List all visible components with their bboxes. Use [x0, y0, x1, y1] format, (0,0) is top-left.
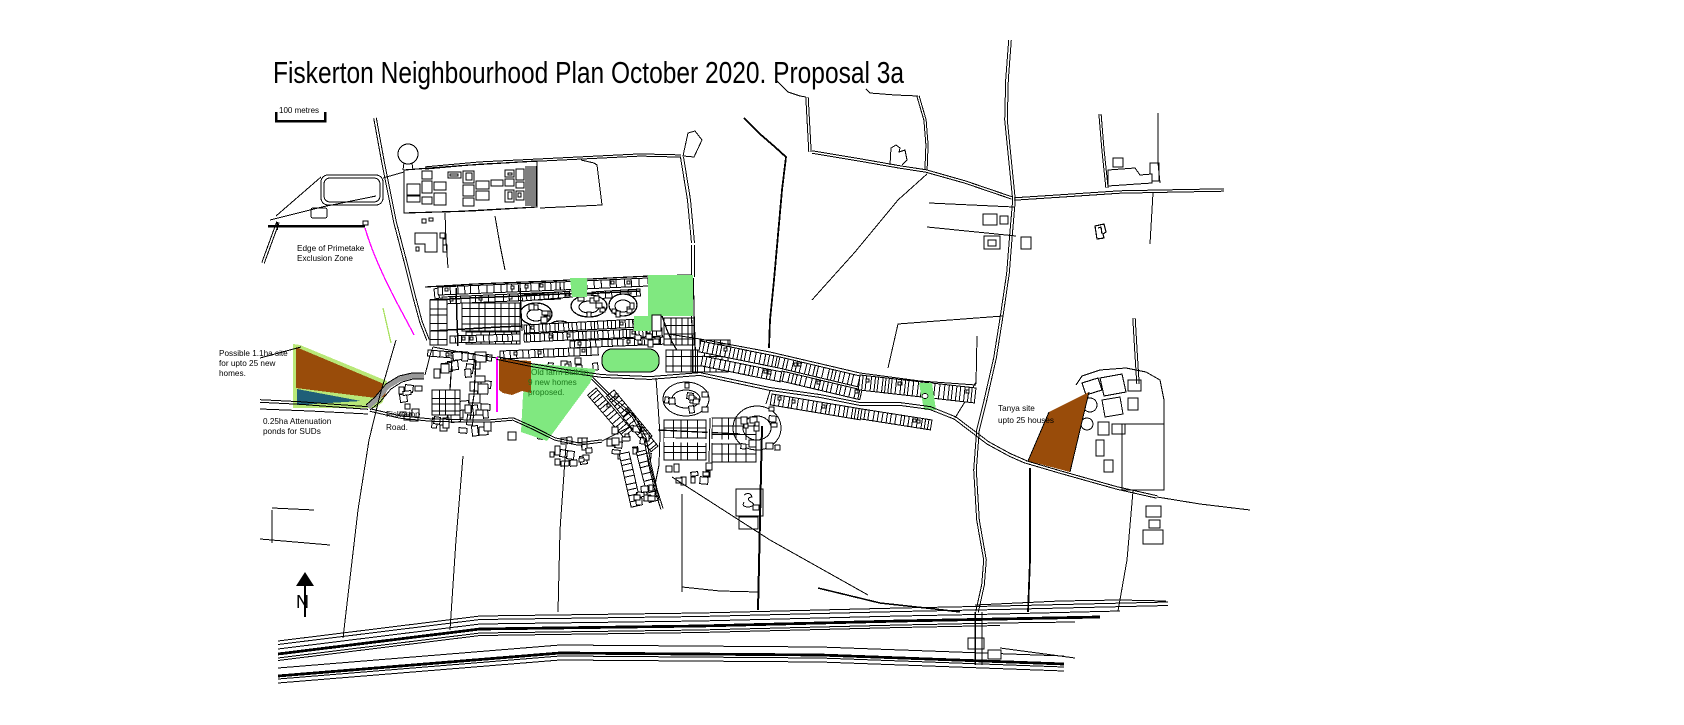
svg-text:Possible 1.1ha site: Possible 1.1ha site [219, 349, 288, 358]
svg-text:Old farm buildin: Old farm buildin [531, 368, 589, 377]
svg-text:Edge of Primetake: Edge of Primetake [297, 244, 365, 253]
svg-text:Fiskerton Neighbourhood Plan O: Fiskerton Neighbourhood Plan October 202… [273, 55, 905, 90]
svg-text:0.25ha Attenuation: 0.25ha Attenuation [263, 417, 332, 426]
svg-text:Exclusion Zone: Exclusion Zone [297, 254, 353, 263]
svg-text:100 metres: 100 metres [279, 106, 319, 115]
svg-text:Tanya site: Tanya site [998, 404, 1035, 413]
svg-text:ponds for SUDs: ponds for SUDs [263, 427, 321, 436]
svg-text:for upto 25 new: for upto 25 new [219, 359, 276, 368]
svg-text:homes.: homes. [219, 369, 246, 378]
svg-text:Fiskerton: Fiskerton [386, 410, 420, 419]
svg-text:proposed.: proposed. [528, 388, 564, 397]
svg-text:N: N [296, 592, 309, 612]
svg-text:Road.: Road. [386, 423, 408, 432]
svg-text:upto 25 houses: upto 25 houses [998, 416, 1054, 425]
svg-text:9 new homes: 9 new homes [528, 378, 577, 387]
